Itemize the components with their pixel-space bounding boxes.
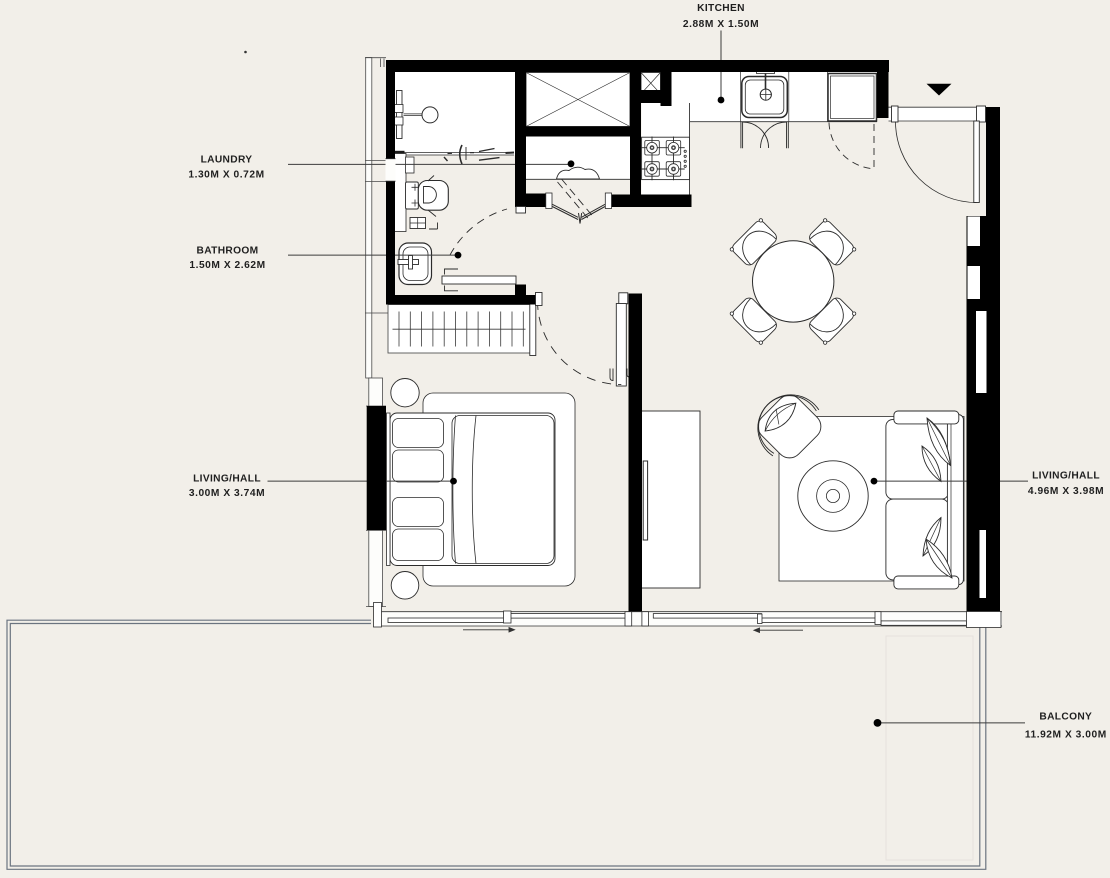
svg-text:2.88M X 1.50M: 2.88M X 1.50M bbox=[683, 19, 759, 30]
svg-text:BALCONY: BALCONY bbox=[1039, 711, 1092, 722]
svg-text:BATHROOM: BATHROOM bbox=[196, 245, 258, 256]
svg-text:LIVING/HALL: LIVING/HALL bbox=[193, 474, 261, 485]
svg-text:3.00M X 3.74M: 3.00M X 3.74M bbox=[189, 488, 265, 499]
svg-text:KITCHEN: KITCHEN bbox=[697, 3, 745, 14]
svg-text:LIVING/HALL: LIVING/HALL bbox=[1032, 470, 1100, 481]
svg-text:4.96M X 3.98M: 4.96M X 3.98M bbox=[1028, 486, 1104, 497]
svg-text:1.30M X 0.72M: 1.30M X 0.72M bbox=[188, 170, 264, 181]
svg-text:LAUNDRY: LAUNDRY bbox=[201, 155, 253, 166]
svg-text:1.50M X 2.62M: 1.50M X 2.62M bbox=[189, 260, 265, 271]
svg-text:11.92M X 3.00M: 11.92M X 3.00M bbox=[1025, 729, 1107, 740]
